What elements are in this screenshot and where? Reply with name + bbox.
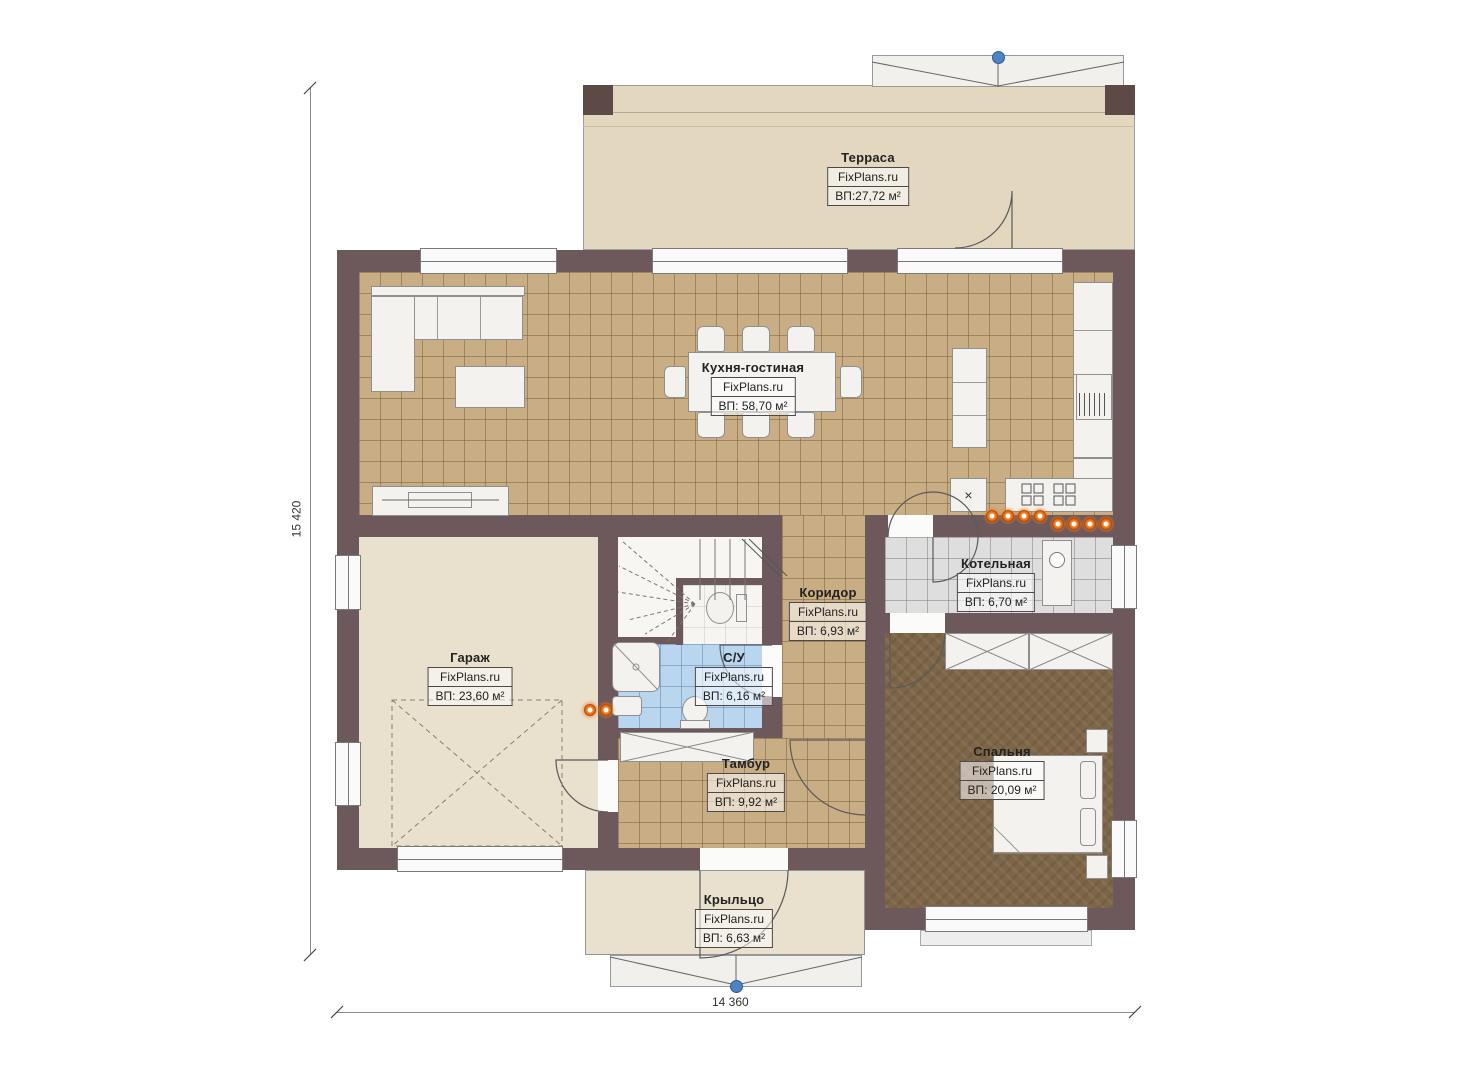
partition-wc-top xyxy=(676,578,782,585)
sink-cross-icon: × xyxy=(964,487,972,503)
bedroom-outer-sill xyxy=(920,930,1092,946)
room-name: Тамбур xyxy=(707,756,785,771)
room-label-porch: Крыльцо FixPlans.ru ВП: 6,63 м² xyxy=(695,892,773,948)
wall-corridor-left xyxy=(762,537,782,738)
heating-outlet-icon xyxy=(1084,518,1096,530)
coffee-table xyxy=(455,366,525,408)
wall-garage-top xyxy=(337,515,618,537)
room-name: С/У xyxy=(695,650,773,665)
heating-outlet-icon xyxy=(584,704,596,716)
wc-toilet-bowl xyxy=(706,592,734,624)
wall-stairs-top xyxy=(598,515,782,537)
room-watermark: FixPlans.ru xyxy=(957,573,1035,593)
entrance-door-opening xyxy=(700,848,788,870)
heating-outlet-icon xyxy=(1002,510,1014,522)
heating-outlet-icon xyxy=(600,704,612,716)
wall-garage-right xyxy=(598,515,618,870)
room-watermark: FixPlans.ru xyxy=(827,167,909,187)
kitchen-counter-bottom xyxy=(1005,478,1113,512)
room-name: Крыльцо xyxy=(695,892,773,907)
south-marker-icon xyxy=(730,980,743,993)
room-name: Котельная xyxy=(957,556,1035,571)
room-label-kitchen-living: Кухня-гостиная FixPlans.ru ВП: 58,70 м² xyxy=(702,360,804,416)
window-top-right xyxy=(897,248,1063,274)
terrace-pillar-left xyxy=(583,85,613,115)
washbasin xyxy=(612,696,642,716)
room-area: ВП: 6,93 м² xyxy=(789,622,867,641)
room-name: Спальня xyxy=(960,744,1045,759)
kitchen-island xyxy=(952,348,987,448)
fridge-vent xyxy=(1079,393,1109,416)
dining-chair xyxy=(697,326,725,352)
window-right-bedroom xyxy=(1111,820,1137,878)
dining-chair xyxy=(742,326,770,352)
partition-wc-left xyxy=(676,578,683,645)
room-label-terrace: Терраса FixPlans.ru ВП:27,72 м² xyxy=(827,150,909,206)
terrace-deck-line-2 xyxy=(583,85,1135,127)
fridge xyxy=(1076,374,1112,420)
room-label-vestibule: Тамбур FixPlans.ru ВП: 9,92 м² xyxy=(707,756,785,812)
bedroom-door-opening xyxy=(890,613,945,633)
boiler-dial-icon xyxy=(1049,552,1065,568)
garage-door-opening xyxy=(598,760,618,812)
room-area: ВП: 20,09 м² xyxy=(960,781,1045,800)
room-area: ВП: 9,92 м² xyxy=(707,793,785,812)
sink-unit: × xyxy=(950,478,987,512)
room-area: ВП: 58,70 м² xyxy=(711,397,796,416)
room-area: ВП: 6,70 м² xyxy=(957,593,1035,612)
room-label-corridor: Коридор FixPlans.ru ВП: 6,93 м² xyxy=(789,585,867,641)
window-right-boiler xyxy=(1111,545,1137,609)
room-area: ВП: 6,63 м² xyxy=(695,929,773,948)
room-area: ВП:27,72 м² xyxy=(827,187,909,206)
heating-outlet-icon xyxy=(1052,518,1064,530)
room-name: Кухня-гостиная xyxy=(702,360,804,375)
wardrobe-bedroom-1 xyxy=(945,633,1029,670)
dimension-line-left xyxy=(310,88,311,955)
dining-chair xyxy=(787,326,815,352)
kitchen-counter-right xyxy=(1073,282,1113,458)
room-label-bedroom: Спальня FixPlans.ru ВП: 20,09 м² xyxy=(960,744,1045,800)
dimension-line-bottom xyxy=(337,1012,1135,1013)
room-watermark: FixPlans.ru xyxy=(428,667,513,687)
room-label-bathroom: С/У FixPlans.ru ВП: 6,16 м² xyxy=(695,650,773,706)
room-label-garage: Гараж FixPlans.ru ВП: 23,60 м² xyxy=(428,650,513,706)
tv-set xyxy=(408,492,472,508)
window-left-garage xyxy=(335,555,361,610)
room-area: ВП: 6,16 м² xyxy=(695,687,773,706)
heating-outlet-icon xyxy=(986,510,998,522)
dimension-width: 14 360 xyxy=(712,995,749,1009)
room-label-boiler: Котельная FixPlans.ru ВП: 6,70 м² xyxy=(957,556,1035,612)
room-watermark: FixPlans.ru xyxy=(960,761,1045,781)
pillow xyxy=(1080,761,1096,799)
window-top-left xyxy=(420,248,557,274)
room-name: Гараж xyxy=(428,650,513,665)
room-area: ВП: 23,60 м² xyxy=(428,687,513,706)
room-watermark: FixPlans.ru xyxy=(695,909,773,929)
heating-outlet-icon xyxy=(1100,518,1112,530)
heating-outlet-icon xyxy=(1068,518,1080,530)
window-bedroom-bottom xyxy=(925,906,1088,932)
room-watermark: FixPlans.ru xyxy=(695,667,773,687)
window-top-center xyxy=(652,248,848,274)
wardrobe-bedroom-2 xyxy=(1029,633,1113,670)
floor-plan: × xyxy=(0,0,1474,1080)
room-watermark: FixPlans.ru xyxy=(711,377,796,397)
heating-outlet-icon xyxy=(1034,510,1046,522)
room-name: Терраса xyxy=(827,150,909,165)
boiler-door-opening xyxy=(888,515,933,537)
terrace-pillar-right xyxy=(1105,85,1135,115)
garage-gate xyxy=(397,846,563,872)
room-watermark: FixPlans.ru xyxy=(789,602,867,622)
window-left-lower xyxy=(335,742,361,806)
dimension-height: 15 420 xyxy=(289,501,303,538)
toilet-tank xyxy=(680,720,710,729)
wc-toilet-tank xyxy=(736,594,747,622)
nightstand xyxy=(1086,729,1108,753)
pillow xyxy=(1080,808,1096,846)
shower xyxy=(612,642,660,692)
room-watermark: FixPlans.ru xyxy=(707,773,785,793)
heating-outlet-icon xyxy=(1018,510,1030,522)
dining-chair xyxy=(840,366,862,398)
nightstand xyxy=(1086,855,1108,879)
boiler-unit xyxy=(1042,540,1072,606)
room-name: Коридор xyxy=(789,585,867,600)
north-marker-icon xyxy=(992,51,1005,64)
wall-corridor-right xyxy=(865,537,885,908)
sofa-back xyxy=(371,286,525,296)
dining-chair xyxy=(664,366,686,398)
sofa-chaise xyxy=(371,296,415,392)
